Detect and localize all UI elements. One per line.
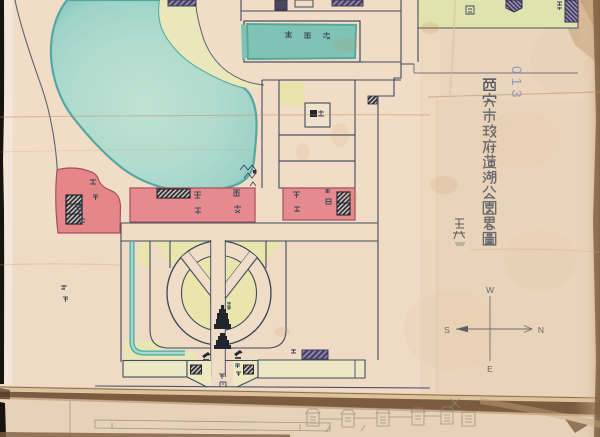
svg-text:013: 013 <box>509 66 525 101</box>
